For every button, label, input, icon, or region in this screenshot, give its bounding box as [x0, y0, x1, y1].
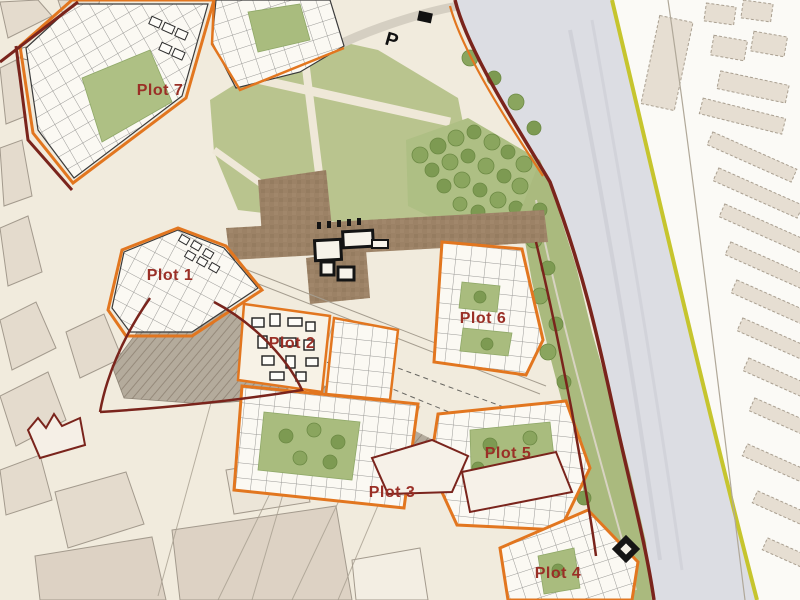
plot-3-label: Plot 3: [369, 484, 416, 501]
plot-7-label: Plot 7: [137, 82, 184, 99]
plot-3-courtyard: [258, 412, 360, 480]
masterplan-canvas: P Plot 7 Plot 1 Plot 2 Plot 3 Plot 4 Plo…: [0, 0, 800, 600]
plot-1-label: Plot 1: [147, 267, 194, 284]
masterplan-map: P Plot 7 Plot 1 Plot 2 Plot 3 Plot 4 Plo…: [0, 0, 800, 600]
plot-6-label: Plot 6: [460, 310, 507, 327]
plot-5-label: Plot 5: [485, 445, 532, 462]
plot-2-label: Plot 2: [269, 335, 316, 352]
plot-4-label: Plot 4: [535, 565, 582, 582]
